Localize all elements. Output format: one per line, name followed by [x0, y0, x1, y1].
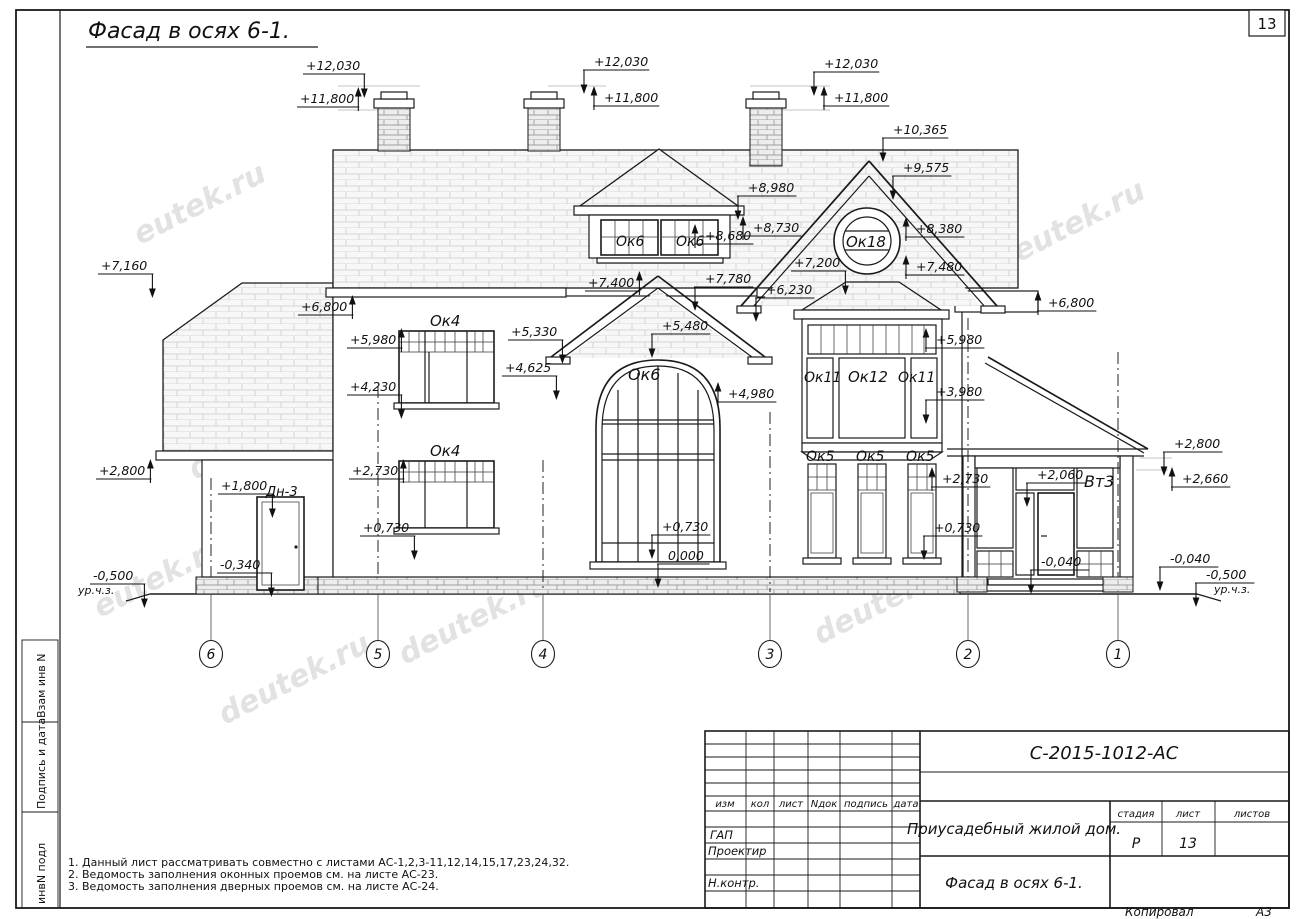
col-ndok: Nдок	[811, 799, 838, 810]
project-name: Приусадебный жилой дом.	[907, 820, 1121, 838]
element-label: Ок6	[616, 234, 644, 250]
elevation-mark: +2,800	[1161, 436, 1223, 476]
role-proj: Проектир	[708, 844, 766, 858]
elevation-value: +10,365	[893, 122, 947, 137]
elevation-value: +12,030	[594, 54, 648, 69]
notes: 1. Данный лист рассматривать совместно с…	[68, 856, 569, 893]
axis-number: 6	[207, 647, 216, 663]
arched-window	[590, 360, 726, 569]
margin-stamp: Взам инв N Подпись и дата инвN подл	[22, 640, 58, 908]
elevation-value: +8,980	[748, 180, 794, 195]
elevation-mark: +6,800	[298, 295, 356, 319]
elevation-value: +4,980	[728, 386, 774, 401]
axis-number: 2	[964, 647, 973, 663]
elevation-value: -0,500	[93, 568, 133, 583]
element-label: Ок6	[628, 365, 660, 384]
page-title: Фасад в осях 6-1.	[88, 19, 290, 44]
note-line: 3. Ведомость заполнения дверных проемов …	[68, 880, 439, 893]
elevation-value: +8,730	[753, 220, 799, 235]
elevation-value: -0,340	[220, 557, 260, 572]
role-gap: ГАП	[710, 828, 733, 842]
title-block: изм кол лист Nдок подпись дата ГАП Проек…	[705, 731, 1289, 908]
elevation-value: +7,780	[705, 271, 751, 286]
element-label: Ок11	[804, 370, 841, 386]
axis-bubble: 3	[759, 594, 782, 668]
elevation-value: +2,060	[1037, 467, 1083, 482]
facade-drawing: eutek.rudeutek.rudeutek.rudeutek.rudeute…	[0, 0, 1300, 919]
cornice-left	[326, 288, 566, 297]
chimney	[374, 92, 414, 151]
elevation-mark: +5,980	[347, 328, 405, 352]
axis-number: 3	[766, 647, 775, 663]
elevation-value: +11,800	[300, 91, 354, 106]
left-wing	[156, 283, 339, 590]
elevation-value: -0,040	[1041, 554, 1081, 569]
element-label: ур.ч.з.	[77, 584, 114, 597]
elevation-value: +8,380	[916, 221, 962, 236]
element-label: Ок12	[848, 368, 888, 386]
bay-eave	[794, 310, 949, 319]
element-label: Ок4	[430, 442, 460, 460]
copied-label: Копировал	[1125, 905, 1194, 919]
elevation-value: +6,230	[766, 282, 812, 297]
format-label: А3	[1255, 905, 1272, 919]
element-label: Ок18	[846, 233, 886, 251]
drawing-sheet: eutek.rudeutek.rudeutek.rudeutek.rudeute…	[0, 0, 1300, 919]
watermark: eutek.ru	[128, 156, 272, 253]
elevation-mark: +2,800	[96, 459, 154, 483]
elevation-value: +4,625	[505, 360, 551, 375]
elevation-mark: +2,660	[1169, 467, 1231, 491]
stage-value: Р	[1132, 836, 1141, 852]
margin-label: Взам инв N	[35, 654, 48, 718]
axis-bubble: 5	[367, 594, 390, 668]
elevation-value: +2,800	[99, 463, 145, 478]
elevation-value: +7,400	[588, 275, 634, 290]
elevation-value: +2,800	[1174, 436, 1220, 451]
elevation-value: +7,480	[916, 259, 962, 274]
elevation-value: -0,500	[1206, 567, 1246, 582]
view-title: Фасад в осях 6-1.	[86, 19, 318, 47]
element-label: Ок5	[856, 449, 884, 465]
margin-label: инвN подл	[35, 843, 48, 904]
elevation-value: +12,030	[306, 58, 360, 73]
elevation-value: +3,980	[936, 384, 982, 399]
stage-label: стадия	[1118, 809, 1155, 820]
veranda-post	[1120, 456, 1133, 577]
elevation-value: 0,000	[668, 548, 704, 563]
window-ok4-upper	[394, 331, 499, 409]
elevation-value: +12,030	[824, 56, 878, 71]
elevation-value: +6,800	[301, 299, 347, 314]
elevation-value: +5,980	[350, 332, 396, 347]
axis-bubble: 6	[200, 594, 223, 668]
col-data: дата	[893, 799, 919, 810]
axis-bubble: 1	[1107, 594, 1130, 668]
elevation-value: +0,730	[363, 520, 409, 535]
plinth	[318, 575, 960, 594]
elevation-value: +11,800	[604, 90, 658, 105]
element-label: Ок4	[430, 312, 460, 330]
dormer-eave	[574, 206, 744, 215]
doc-number: С-2015-1012-АС	[1030, 743, 1179, 764]
elevation-value: +1,800	[221, 478, 267, 493]
window-ok5	[853, 464, 891, 564]
axis-number: 1	[1114, 647, 1123, 663]
elevation-value: +2,660	[1182, 471, 1228, 486]
sheet-name: Фасад в осях 6-1.	[945, 874, 1083, 892]
elevation-value: +5,330	[511, 324, 557, 339]
watermark: deutek.ru	[213, 626, 376, 732]
elevation-mark: +11,800	[821, 86, 890, 110]
axis-bubble: 2	[957, 594, 980, 668]
elevation-value: -0,040	[1170, 551, 1210, 566]
elevation-mark: +12,030	[581, 54, 650, 94]
element-label: Ок11	[898, 370, 935, 386]
sheet-footer: Копировал А3	[1125, 905, 1272, 919]
elevation-value: +0,730	[662, 519, 708, 534]
elevation-value: +6,800	[1048, 295, 1094, 310]
element-label: Дн-3	[265, 485, 298, 500]
element-label: Ок6	[676, 234, 704, 250]
elevation-value: +5,480	[662, 318, 708, 333]
axis-number: 4	[539, 647, 548, 663]
col-podpis: подпись	[844, 799, 888, 810]
elevation-value: +7,200	[794, 255, 840, 270]
veranda-sidelight	[1016, 493, 1034, 575]
elevation-mark: +11,800	[297, 87, 362, 111]
sheets-label: листов	[1233, 809, 1270, 820]
sheet-number: 13	[1257, 15, 1276, 33]
element-label: Ок5	[806, 449, 834, 465]
sheet-value: 13	[1179, 836, 1197, 852]
window-ok5-group	[803, 464, 941, 564]
veranda-steps	[957, 577, 1133, 592]
window-ok4-lower	[394, 461, 499, 534]
left-eave	[156, 451, 339, 460]
margin-label: Подпись и дата	[35, 718, 48, 809]
sheet-label: лист	[1175, 809, 1201, 820]
elevation-value: +8,680	[705, 228, 751, 243]
element-label: ур.ч.з.	[1213, 583, 1250, 596]
elevation-mark: +7,160	[98, 258, 156, 298]
window-ok5	[803, 464, 841, 564]
role-nkontr: Н.контр.	[708, 876, 759, 890]
chimney	[524, 92, 564, 151]
elevation-value: +4,230	[350, 379, 396, 394]
elevation-value: +5,980	[936, 332, 982, 347]
col-list: лист	[778, 799, 804, 810]
elevation-mark: +11,800	[591, 86, 660, 110]
col-kol: кол	[751, 799, 770, 810]
elevation-value: +2,730	[942, 471, 988, 486]
elevation-mark: +7,400	[585, 271, 643, 295]
elevation-value: +2,730	[352, 463, 398, 478]
elevation-value: +9,575	[903, 160, 949, 175]
col-izm: изм	[715, 799, 735, 810]
elevation-value: +11,800	[834, 90, 888, 105]
elevation-mark: +2,730	[349, 459, 407, 483]
elevation-value: +7,160	[101, 258, 147, 273]
element-label: Ок5	[906, 449, 934, 465]
window-ok5	[903, 464, 941, 564]
chimney	[746, 92, 786, 166]
elevation-mark: +6,800	[1035, 291, 1097, 315]
entry-door	[257, 497, 304, 590]
elevation-value: +0,730	[934, 520, 980, 535]
axis-number: 5	[374, 647, 383, 663]
element-label: Вт3	[1084, 472, 1114, 491]
